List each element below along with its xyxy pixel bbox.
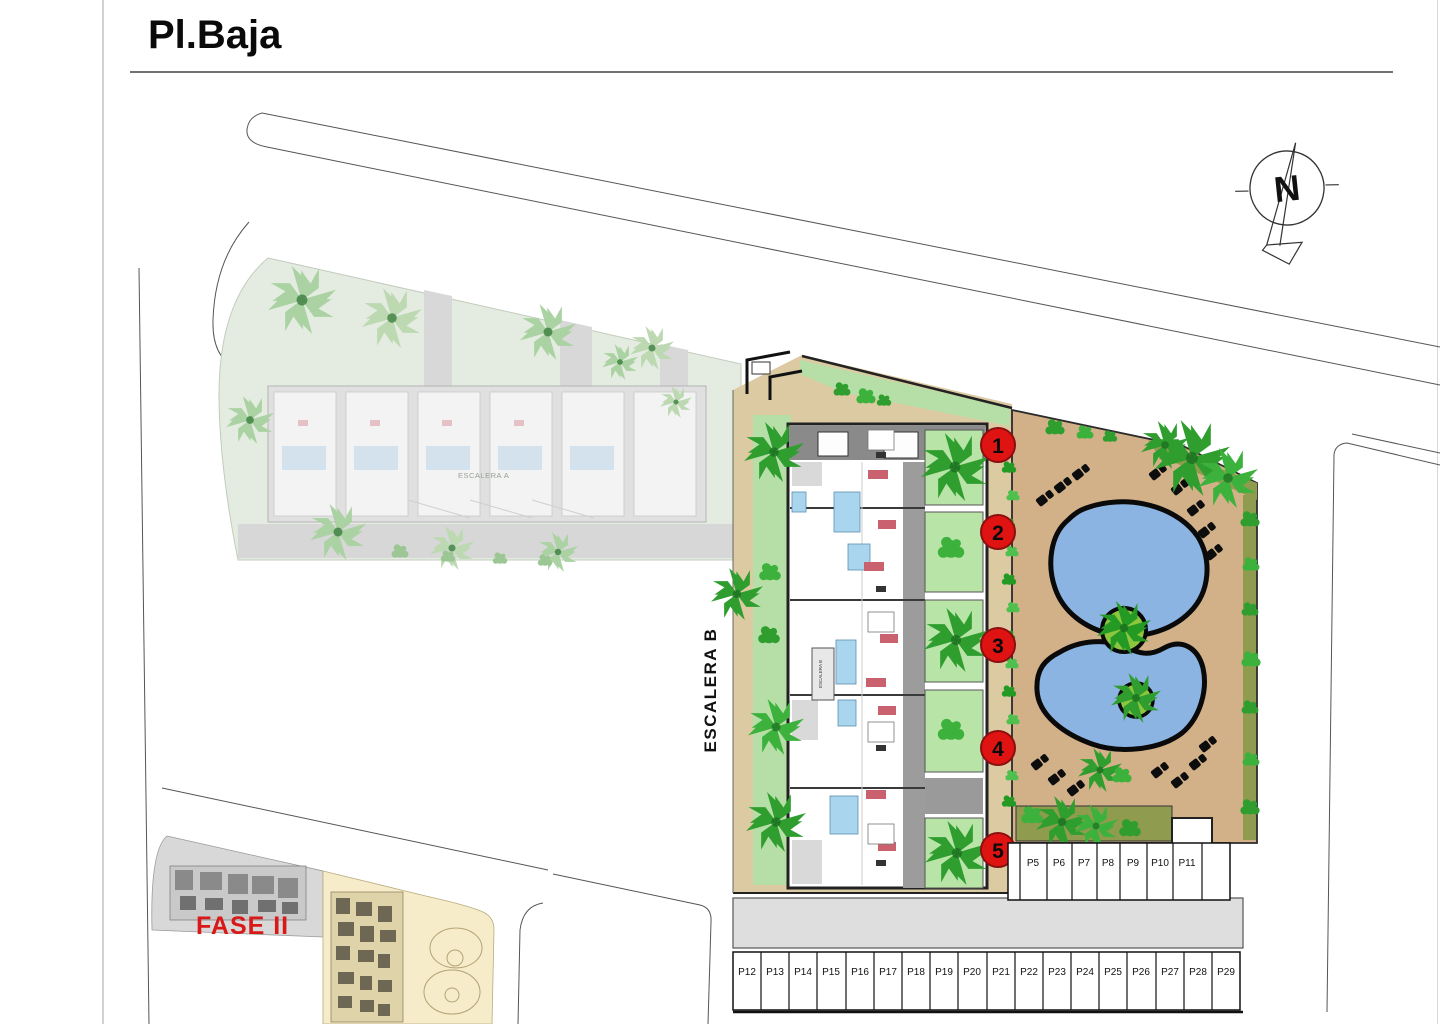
stall-label: P23 (1048, 967, 1066, 978)
stall-label: P13 (766, 967, 784, 978)
stall-label: P8 (1102, 858, 1115, 869)
driveway (733, 898, 1243, 948)
north-compass: N (1223, 133, 1346, 271)
stall-label: P19 (935, 967, 953, 978)
west-street-line (139, 268, 149, 1024)
svg-text:2: 2 (992, 522, 1004, 545)
stall-label: P9 (1127, 858, 1140, 869)
parking-row-top: P5 P6 P7 P8 P9 P10 P11 (1008, 843, 1230, 900)
stall-label: P25 (1104, 967, 1122, 978)
stall-label: P14 (794, 967, 812, 978)
stair-core (812, 648, 834, 700)
stall-label: P29 (1217, 967, 1235, 978)
east-street-corner (1327, 434, 1440, 1012)
stair-core-label: ESCALERA B (818, 660, 823, 688)
stall-label: P16 (851, 967, 869, 978)
faded-site-fase2: ESCALERA A (219, 258, 741, 572)
svg-text:1: 1 (992, 435, 1004, 458)
inset-current-building (331, 892, 403, 1022)
key-plan-inset: FASE II (152, 836, 494, 1024)
stall-label: P20 (963, 967, 981, 978)
stall-label: P21 (992, 967, 1010, 978)
stall-label: P18 (907, 967, 925, 978)
stall-label: P27 (1161, 967, 1179, 978)
escalera-b-label: ESCALERA B (701, 628, 720, 753)
north-label: N (1272, 167, 1302, 210)
stall-label: P12 (738, 967, 756, 978)
stall-label: P26 (1132, 967, 1150, 978)
stall-label: P7 (1078, 858, 1091, 869)
stall-label: P28 (1189, 967, 1207, 978)
faded-driveway (238, 524, 741, 558)
unit-marker-4[interactable]: 4 (981, 731, 1015, 765)
stall-label: P24 (1076, 967, 1094, 978)
unit-marker-3[interactable]: 3 (981, 628, 1015, 662)
stall-label: P15 (822, 967, 840, 978)
site-plan-canvas: Pl.Baja ESCALERA A (0, 0, 1440, 1024)
stall-label: P5 (1027, 858, 1040, 869)
pool-house (1172, 818, 1212, 845)
stall-label: P22 (1020, 967, 1038, 978)
svg-text:3: 3 (992, 635, 1004, 658)
unit-marker-2[interactable]: 2 (981, 515, 1015, 549)
compass-needle-tail (1261, 235, 1302, 266)
page-title: Pl.Baja (148, 13, 282, 57)
svg-text:4: 4 (992, 738, 1004, 761)
fase-ii-label: FASE II (196, 912, 289, 940)
current-phase-site: ESCALERA B (701, 352, 1261, 893)
floorplan-page: Pl.Baja ESCALERA A (0, 0, 1440, 1024)
parking-row-bottom: P12 P13 P14 P15 P16 P17 P18 P19 P20 P21 … (733, 952, 1240, 1010)
stall-label: P17 (879, 967, 897, 978)
stall-label: P11 (1178, 858, 1195, 869)
svg-text:5: 5 (992, 840, 1004, 863)
stall-label: P10 (1151, 858, 1169, 869)
escalera-a-label: ESCALERA A (458, 471, 509, 480)
stall-label: P6 (1053, 858, 1066, 869)
unit-marker-1[interactable]: 1 (981, 428, 1015, 462)
